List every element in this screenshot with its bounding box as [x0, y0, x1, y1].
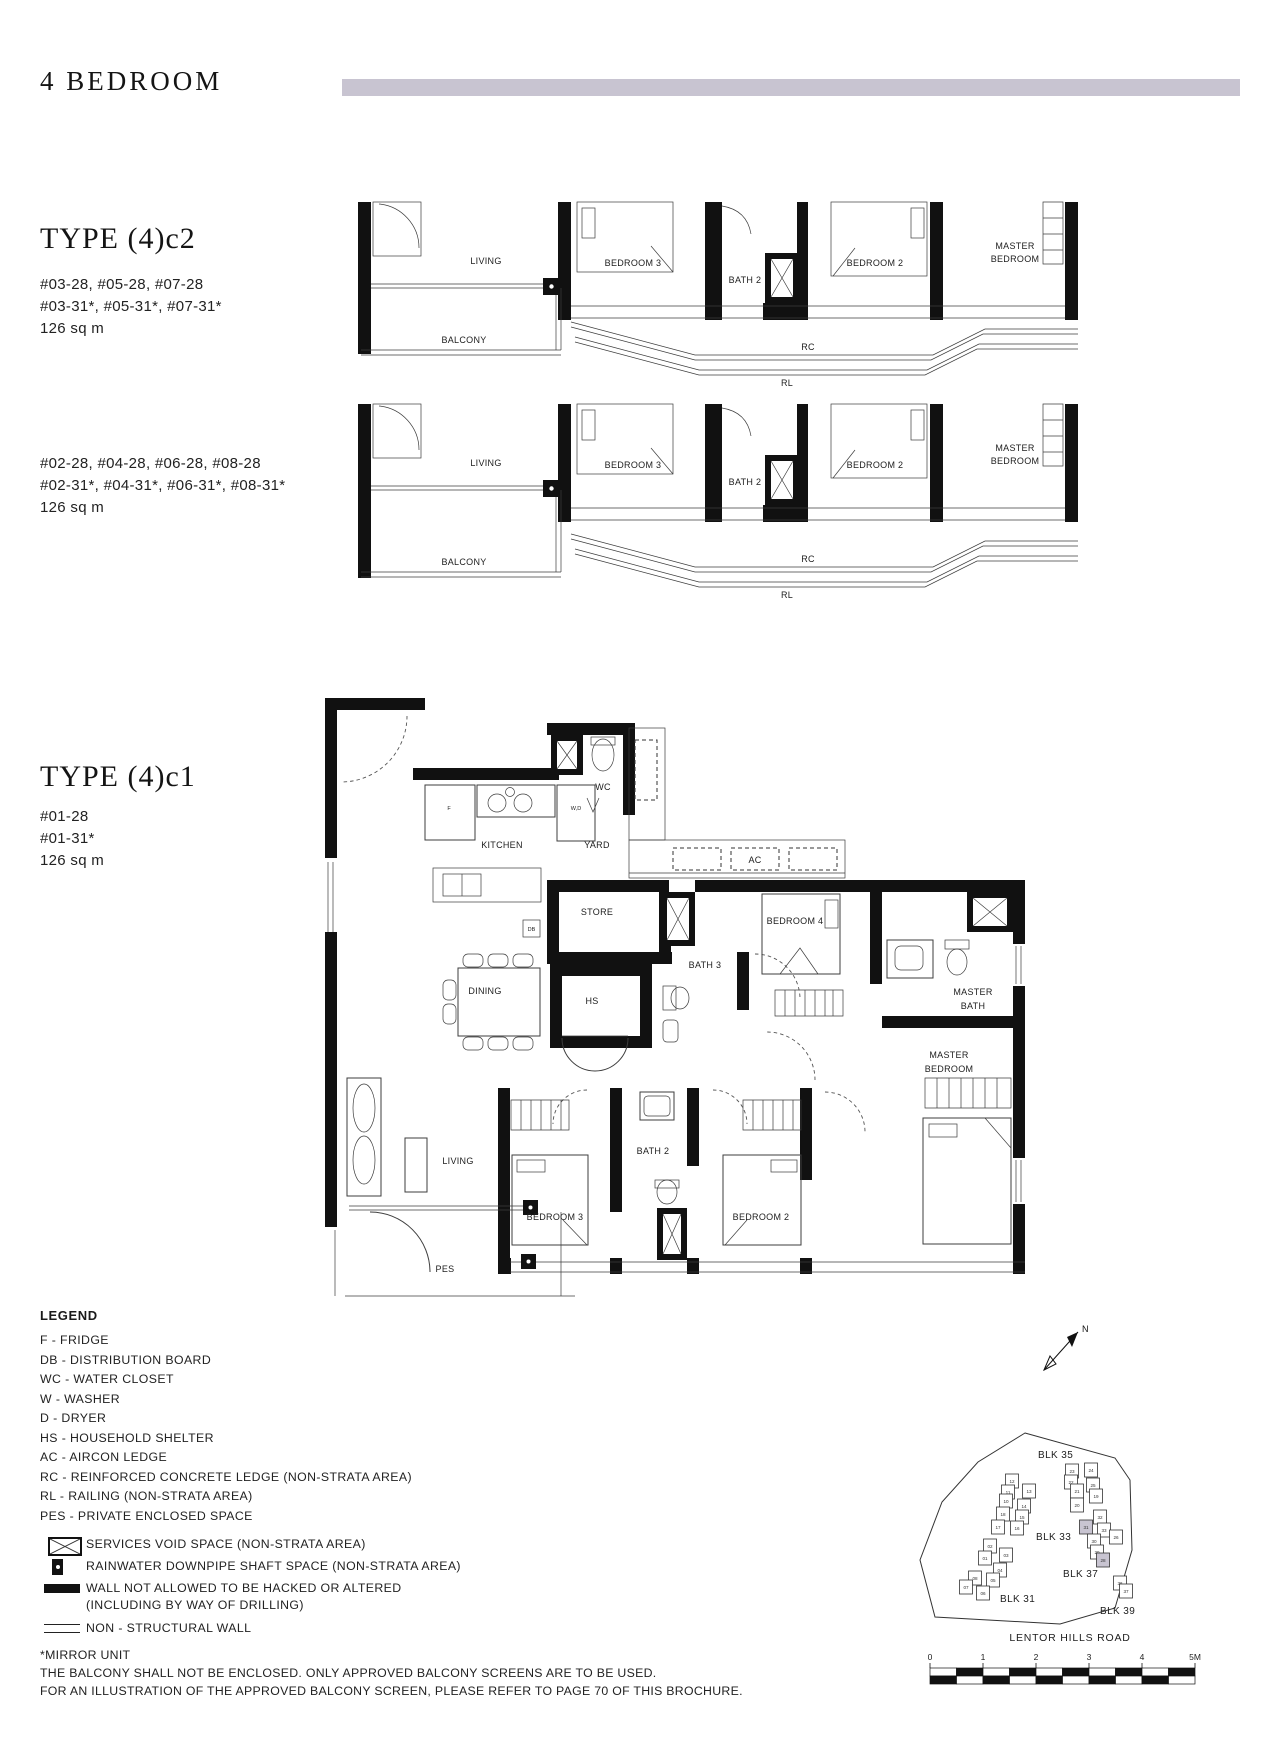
legend-symbol-row: WALL NOT ALLOWED TO BE HACKED OR ALTERED… — [40, 1580, 402, 1614]
legend-item: AC - AIRCON LEDGE — [40, 1448, 412, 1468]
scale-bar-cell — [1089, 1676, 1116, 1684]
scale-bar-cell — [1116, 1676, 1143, 1684]
room-label-living: LIVING — [442, 1156, 473, 1166]
legend-item: D - DRYER — [40, 1409, 412, 1429]
site-unit-number: 23 — [1069, 1469, 1075, 1474]
legend-symbol-row: RAINWATER DOWNPIPE SHAFT SPACE (NON-STRA… — [40, 1558, 461, 1575]
room-label-master-bedroom: BEDROOM — [925, 1064, 974, 1074]
legend-symbol-row: SERVICES VOID SPACE (NON-STRATA AREA) — [40, 1536, 366, 1556]
label-fridge: F — [447, 806, 451, 812]
type-c2-title: TYPE (4)c2 — [40, 222, 196, 256]
scale-label: 5M — [1189, 1652, 1201, 1662]
room-label-living: LIVING — [470, 458, 501, 468]
block-label: BLK 35 — [1038, 1450, 1073, 1461]
legend-symbol-label: SERVICES VOID SPACE (NON-STRATA AREA) — [86, 1536, 366, 1553]
unit-area: 126 sq m — [40, 318, 222, 340]
living-furniture — [347, 1078, 427, 1196]
room-label-pes: PES — [436, 1264, 455, 1274]
site-unit-number: 28 — [1100, 1558, 1106, 1563]
type-c2-units-a: #03-28, #05-28, #07-28 #03-31*, #05-31*,… — [40, 274, 222, 340]
footnote-line: FOR AN ILLUSTRATION OF THE APPROVED BALC… — [40, 1682, 743, 1700]
room-label-bedroom3: BEDROOM 3 — [527, 1212, 584, 1222]
legend: LEGEND F - FRIDGE DB - DISTRIBUTION BOAR… — [40, 1308, 412, 1526]
site-unit-number: 07 — [963, 1585, 969, 1590]
type-c1-title: TYPE (4)c1 — [40, 760, 196, 794]
room-label-master-bedroom: MASTER — [995, 241, 1035, 251]
room-label-hs: HS — [585, 996, 598, 1006]
rainwater-downpipe-icon — [52, 1559, 63, 1575]
walls — [358, 202, 1078, 354]
label-rc: RC — [801, 342, 815, 352]
site-unit-number: 19 — [1093, 1494, 1099, 1499]
floorplan-type-c2-b: LIVING BEDROOM 3 BATH 2 BEDROOM 2 MASTER… — [315, 400, 1085, 605]
legend-item: W - WASHER — [40, 1390, 412, 1410]
site-unit-number: 31 — [1083, 1525, 1089, 1530]
room-label-bedroom2: BEDROOM 2 — [847, 460, 904, 470]
footnote-line: *MIRROR UNIT — [40, 1646, 743, 1664]
site-unit-number: 04 — [997, 1568, 1003, 1573]
scale-label: 1 — [981, 1652, 986, 1662]
unit-area: 126 sq m — [40, 850, 104, 872]
room-label-kitchen: KITCHEN — [481, 840, 523, 850]
page-title: 4 BEDROOM — [40, 66, 222, 97]
room-label-yard: YARD — [584, 840, 610, 850]
room-label-living: LIVING — [470, 256, 501, 266]
scale-bar-cell — [1169, 1668, 1196, 1676]
site-unit-number: 17 — [995, 1525, 1001, 1530]
floorplan-type-c2-a: LIVING BEDROOM 3 BATH 2 BEDROOM 2 MASTER… — [315, 198, 1085, 398]
walls — [358, 404, 1078, 578]
brochure-page: 4 BEDROOM TYPE (4)c2 #03-28, #05-28, #07… — [0, 0, 1282, 1755]
room-label-balcony: BALCONY — [441, 557, 486, 567]
pes-boundary — [335, 1212, 575, 1296]
floorplan-type-c1: KITCHEN YARD WC AC F W,D DB STORE DINING… — [325, 640, 1025, 1305]
compass-icon: N — [1044, 1324, 1089, 1370]
rainwater-downpipe-icon — [543, 480, 560, 497]
room-label-master-bath: BATH — [961, 1001, 986, 1011]
site-unit-number: 03 — [1003, 1553, 1009, 1558]
site-plan: N 23242225211920323133263029283637121113… — [820, 1290, 1282, 1700]
site-unit-number: 16 — [1014, 1526, 1020, 1531]
scale-bar-cell — [1010, 1668, 1037, 1676]
label-ac: AC — [748, 855, 761, 865]
unit-numbers-line: #01-28 — [40, 806, 104, 828]
site-unit-number: 30 — [1091, 1539, 1097, 1544]
site-unit-number: 26 — [1113, 1535, 1119, 1540]
site-unit-number: 24 — [1088, 1468, 1094, 1473]
legend-item: F - FRIDGE — [40, 1331, 412, 1351]
unit-numbers-line: #02-28, #04-28, #06-28, #08-28 — [40, 453, 285, 475]
room-label-bedroom2: BEDROOM 2 — [733, 1212, 790, 1222]
services-void-icon — [657, 1208, 687, 1260]
room-label-master-bath: MASTER — [953, 987, 993, 997]
unit-area: 126 sq m — [40, 497, 285, 519]
site-unit-number: 02 — [987, 1544, 993, 1549]
unit-numbers-line: #01-31* — [40, 828, 104, 850]
room-label-bath2: BATH 2 — [729, 275, 762, 285]
rc-rl-ledge — [571, 534, 1078, 587]
site-unit-number: 37 — [1123, 1589, 1129, 1594]
scale-bar-cell — [957, 1668, 984, 1676]
services-void-icon — [551, 735, 583, 775]
room-label-bath3: BATH 3 — [689, 960, 722, 970]
site-unit-number: 21 — [1074, 1489, 1080, 1494]
legend-symbol-label-line: WALL NOT ALLOWED TO BE HACKED OR ALTERED — [86, 1580, 402, 1597]
legend-title: LEGEND — [40, 1308, 412, 1323]
room-label-bedroom3: BEDROOM 3 — [605, 460, 662, 470]
room-label-bedroom4: BEDROOM 4 — [767, 916, 824, 926]
site-unit-number: 01 — [982, 1556, 988, 1561]
site-unit-number: 10 — [1003, 1499, 1009, 1504]
room-label-store: STORE — [581, 907, 613, 917]
accent-bar — [342, 79, 1240, 96]
room-label-bedroom3: BEDROOM 3 — [605, 258, 662, 268]
rc-rl-ledge — [571, 322, 1078, 375]
block-label: BLK 39 — [1100, 1606, 1135, 1617]
scale-bar-cell — [1036, 1676, 1063, 1684]
room-label-dining: DINING — [468, 986, 501, 996]
non-structural-wall-icon — [44, 1624, 80, 1633]
footnote-line: THE BALCONY SHALL NOT BE ENCLOSED. ONLY … — [40, 1664, 743, 1682]
label-washer-dryer: W,D — [571, 806, 581, 812]
legend-symbol-label: WALL NOT ALLOWED TO BE HACKED OR ALTERED… — [86, 1580, 402, 1614]
scale-bar-cell — [957, 1676, 984, 1684]
scale-bar-cell — [1063, 1676, 1090, 1684]
unit-numbers-line: #03-28, #05-28, #07-28 — [40, 274, 222, 296]
scale-bar-cell — [1036, 1668, 1063, 1676]
room-label-master-bedroom: MASTER — [995, 443, 1035, 453]
scale-bar-cell — [1142, 1676, 1169, 1684]
scale-bar-cell — [1063, 1668, 1090, 1676]
block-label: BLK 31 — [1000, 1594, 1035, 1605]
site-unit-number: 08 — [972, 1576, 978, 1581]
room-label-master-bedroom: BEDROOM — [991, 456, 1040, 466]
site-unit-number: 14 — [1021, 1504, 1027, 1509]
rainwater-downpipe-icon — [543, 278, 560, 295]
dining-furniture — [443, 954, 540, 1050]
room-label-balcony: BALCONY — [441, 335, 486, 345]
scale-label: 3 — [1087, 1652, 1092, 1662]
legend-item: RL - RAILING (NON-STRATA AREA) — [40, 1487, 412, 1507]
scale-bar-cell — [983, 1676, 1010, 1684]
services-void-icon — [661, 892, 695, 946]
block-label: BLK 37 — [1063, 1569, 1098, 1580]
site-unit-number: 25 — [1090, 1483, 1096, 1488]
site-unit-number: 06 — [980, 1591, 986, 1596]
legend-symbol-label: NON - STRUCTURAL WALL — [86, 1620, 251, 1637]
scale-bar-cell — [930, 1676, 957, 1684]
room-label-bedroom2: BEDROOM 2 — [847, 258, 904, 268]
type-c2-units-b: #02-28, #04-28, #06-28, #08-28 #02-31*, … — [40, 453, 285, 519]
scale-bar-cell — [1169, 1676, 1196, 1684]
scale-bar-cell — [983, 1668, 1010, 1676]
services-void-icon — [967, 892, 1013, 932]
room-label-master-bedroom: MASTER — [929, 1050, 969, 1060]
site-unit-number: 13 — [1026, 1489, 1032, 1494]
label-rc: RC — [801, 554, 815, 564]
legend-item: WC - WATER CLOSET — [40, 1370, 412, 1390]
scale-bar: 012345M — [928, 1652, 1201, 1684]
label-rl: RL — [781, 378, 793, 388]
site-unit-number: 05 — [990, 1578, 996, 1583]
block-label: BLK 33 — [1036, 1532, 1071, 1543]
site-unit-number: 12 — [1009, 1479, 1015, 1484]
label-db: DB — [528, 927, 536, 933]
services-void-icon — [765, 455, 799, 505]
compass-label: N — [1082, 1324, 1089, 1334]
structural-wall-icon — [44, 1584, 80, 1593]
scale-label: 2 — [1034, 1652, 1039, 1662]
unit-numbers-line: #02-31*, #04-31*, #06-31*, #08-31* — [40, 475, 285, 497]
rainwater-downpipe-icon — [521, 1200, 538, 1269]
scale-bar-cell — [1142, 1668, 1169, 1676]
site-unit-number: 20 — [1074, 1503, 1080, 1508]
room-label-master-bedroom: BEDROOM — [991, 254, 1040, 264]
site-unit-number: 32 — [1097, 1515, 1103, 1520]
legend-item: PES - PRIVATE ENCLOSED SPACE — [40, 1507, 412, 1527]
unit-numbers-line: #03-31*, #05-31*, #07-31* — [40, 296, 222, 318]
room-label-bath2: BATH 2 — [637, 1146, 670, 1156]
legend-symbol-row: NON - STRUCTURAL WALL — [40, 1620, 251, 1637]
footnotes: *MIRROR UNIT THE BALCONY SHALL NOT BE EN… — [40, 1646, 743, 1700]
scale-bar-cell — [1010, 1676, 1037, 1684]
scale-bar-cell — [1116, 1668, 1143, 1676]
site-unit-number: 18 — [1000, 1512, 1006, 1517]
road-label: LENTOR HILLS ROAD — [1009, 1632, 1130, 1644]
label-rl: RL — [781, 590, 793, 600]
services-void-icon — [48, 1537, 82, 1556]
legend-symbol-label-line: (INCLUDING BY WAY OF DRILLING) — [86, 1597, 402, 1614]
legend-item: HS - HOUSEHOLD SHELTER — [40, 1429, 412, 1449]
scale-label: 4 — [1140, 1652, 1145, 1662]
legend-symbol-label: RAINWATER DOWNPIPE SHAFT SPACE (NON-STRA… — [86, 1558, 461, 1575]
scale-label: 0 — [928, 1652, 933, 1662]
room-label-bath2: BATH 2 — [729, 477, 762, 487]
site-unit-number: 33 — [1101, 1528, 1107, 1533]
scale-bar-cell — [930, 1668, 957, 1676]
type-c1-units: #01-28 #01-31* 126 sq m — [40, 806, 104, 872]
legend-item: RC - REINFORCED CONCRETE LEDGE (NON-STRA… — [40, 1468, 412, 1488]
aircon-ledge — [629, 728, 845, 878]
legend-item: DB - DISTRIBUTION BOARD — [40, 1351, 412, 1371]
scale-bar-cell — [1089, 1668, 1116, 1676]
services-void-icon — [765, 253, 799, 303]
room-label-wc: WC — [595, 782, 611, 792]
site-unit-number: 15 — [1019, 1515, 1025, 1520]
